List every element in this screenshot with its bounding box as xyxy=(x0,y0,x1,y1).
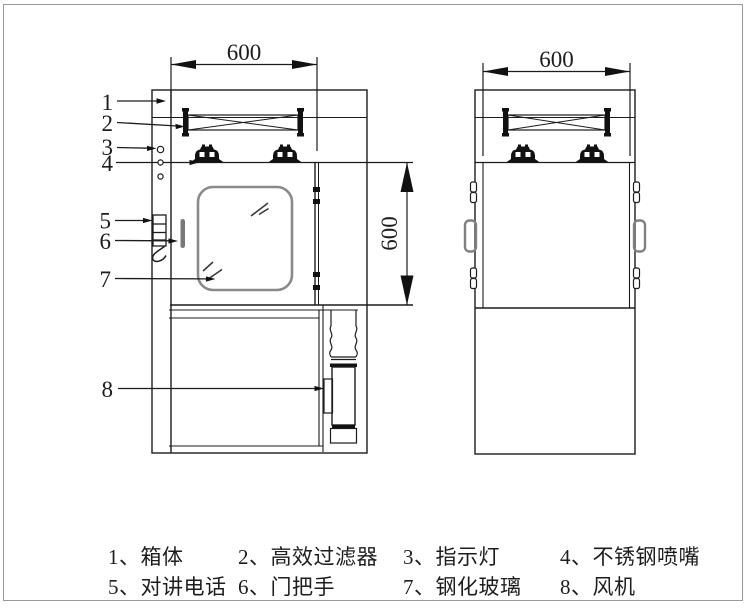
spray-nozzle-icon xyxy=(190,145,302,163)
legend-item-7: 7、钢化玻璃 xyxy=(403,571,522,601)
hepa-filter-front xyxy=(182,108,304,137)
duct-bellows xyxy=(330,310,358,367)
dim-front-width: 600 xyxy=(171,40,317,151)
callout-2: 2 xyxy=(102,111,114,136)
callout-4: 4 xyxy=(102,151,114,176)
dim-front-height-value: 600 xyxy=(377,216,402,251)
legend-item-3: 3、指示灯 xyxy=(403,541,500,571)
callout-8: 8 xyxy=(102,377,114,402)
cabinet-outline-front xyxy=(152,90,367,453)
legend-item-8: 8、风机 xyxy=(560,571,636,601)
dim-front-width-value: 600 xyxy=(227,40,262,65)
indicator-lights xyxy=(157,146,163,179)
glass-window xyxy=(198,187,292,290)
glass-reflection-marks xyxy=(203,203,269,281)
side-hinges xyxy=(471,182,640,289)
legend-item-4: 4、不锈钢喷嘴 xyxy=(560,541,700,571)
side-view xyxy=(465,90,645,454)
front-view xyxy=(116,90,413,453)
dim-side-width-value: 600 xyxy=(539,47,574,72)
legend-item-2: 2、高效过滤器 xyxy=(238,541,378,571)
callout-7: 7 xyxy=(100,267,112,292)
callout-labels: 1 2 3 4 5 6 7 8 xyxy=(100,90,114,402)
cabinet-outline-side xyxy=(475,90,635,454)
fan-unit xyxy=(324,367,357,443)
pass-box-drawing: 600 600 600 1 2 3 4 5 6 7 8 xyxy=(0,0,750,611)
dim-front-height: 600 xyxy=(377,163,414,306)
spray-nozzle-icon-side xyxy=(506,145,609,163)
intercom-phone xyxy=(153,215,166,261)
door-handle-front xyxy=(181,219,186,248)
hepa-filter-side xyxy=(502,108,611,137)
legend-item-5: 5、对讲电话 xyxy=(108,571,227,601)
callout-6: 6 xyxy=(100,229,112,254)
legend-item-6: 6、门把手 xyxy=(238,571,335,601)
fan-switch-box xyxy=(324,379,333,413)
legend-item-1: 1、箱体 xyxy=(108,541,184,571)
technical-drawing-page: 600 600 600 1 2 3 4 5 6 7 8 xyxy=(0,0,750,611)
dim-side-width: 600 xyxy=(483,47,630,156)
